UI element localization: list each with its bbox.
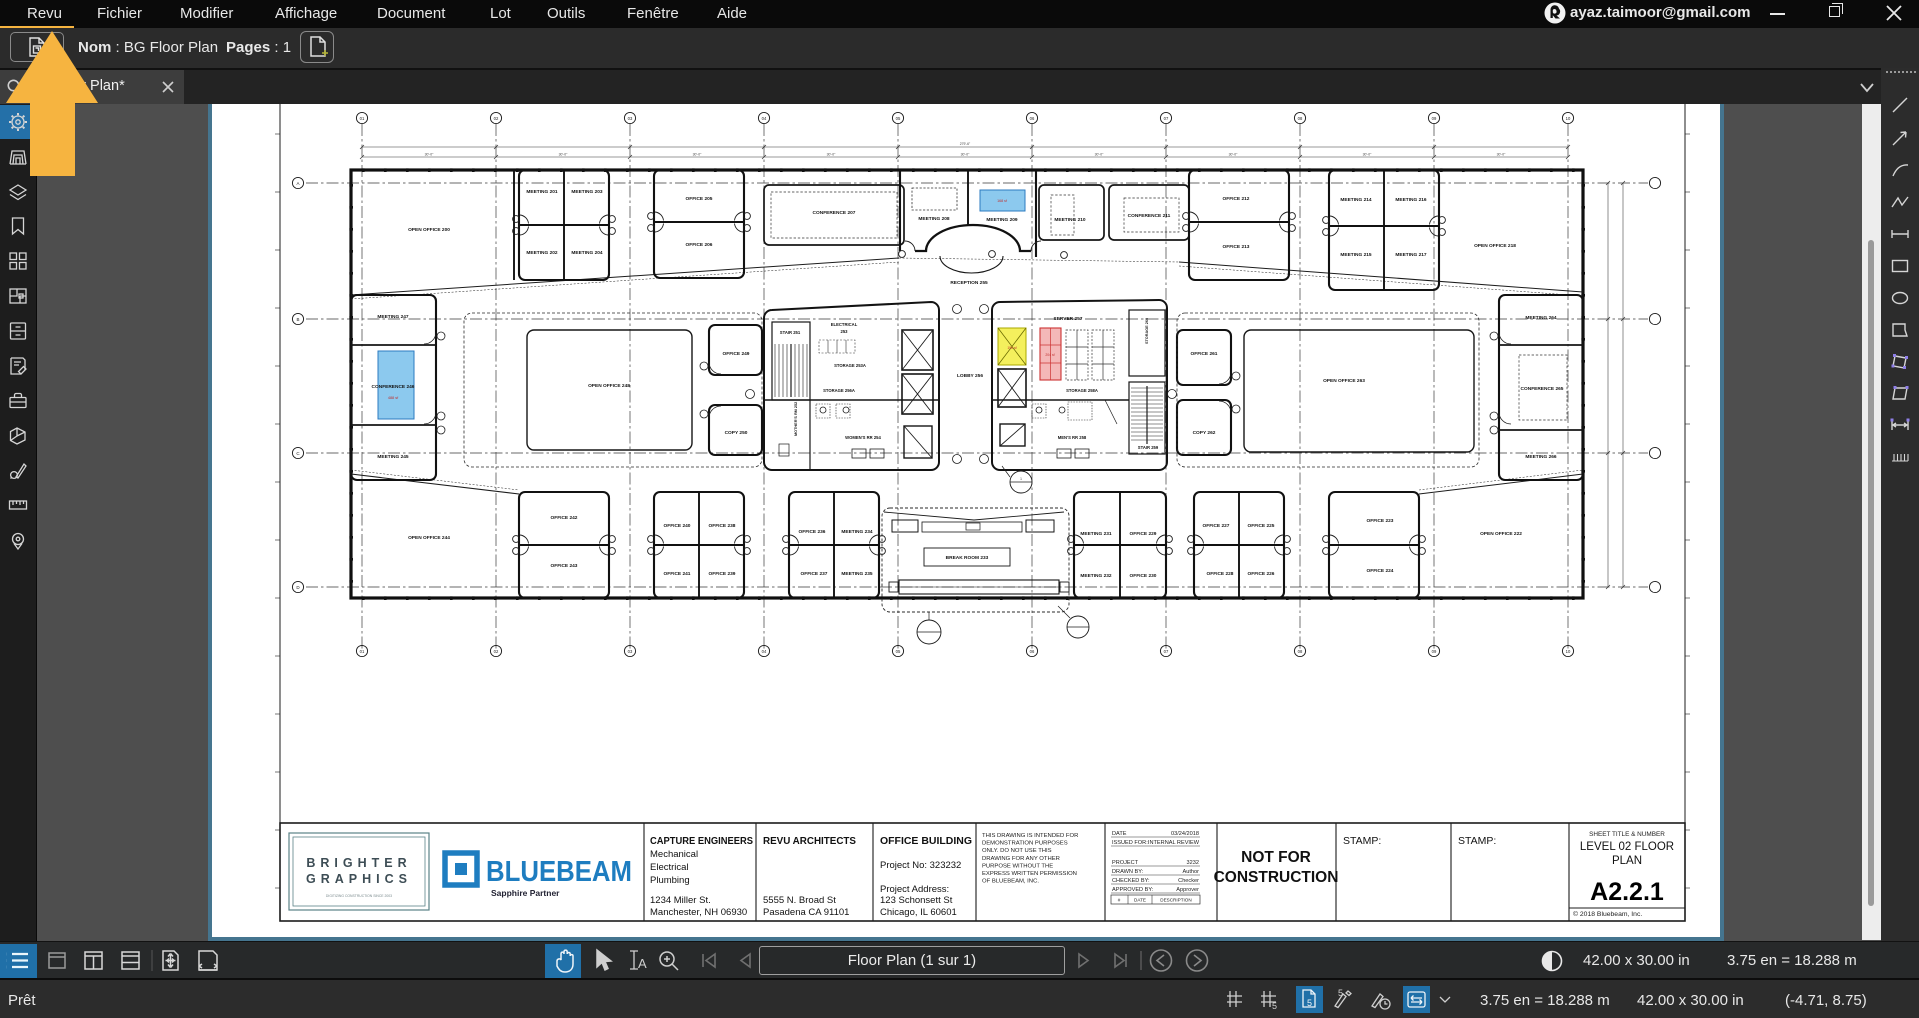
svg-text:CAPTURE ENGINEERS: CAPTURE ENGINEERS	[650, 835, 753, 847]
svg-text:MEETING 204: MEETING 204	[571, 250, 603, 256]
svg-text:30'-0": 30'-0"	[1229, 153, 1238, 157]
svg-text:OFFICE 239: OFFICE 239	[709, 571, 736, 577]
svg-text:OFFICE 225: OFFICE 225	[1248, 523, 1275, 529]
svg-text:CONSTRUCTION: CONSTRUCTION	[1214, 869, 1339, 886]
svg-text:Mechanical: Mechanical	[650, 849, 698, 860]
svg-text:DATE: DATE	[1112, 831, 1127, 837]
svg-text:COPY 262: COPY 262	[1193, 430, 1216, 436]
svg-text:OFFICE 213: OFFICE 213	[1223, 244, 1250, 250]
svg-text:A: A	[638, 956, 647, 971]
svg-text:MEETING 210: MEETING 210	[1054, 217, 1086, 223]
svg-text:5555 N. Broad St: 5555 N. Broad St	[763, 895, 836, 906]
svg-text:MEETING 216: MEETING 216	[1395, 197, 1427, 203]
svg-text:30'-0": 30'-0"	[693, 153, 702, 157]
svg-text:D: D	[296, 585, 300, 590]
svg-text:MEETING 234: MEETING 234	[841, 529, 873, 535]
svg-text:5: 5	[1272, 1001, 1277, 1011]
svg-text:279'-6": 279'-6"	[960, 142, 971, 146]
svg-text:OFFICE 205: OFFICE 205	[686, 196, 713, 202]
svg-text:PROJECT: PROJECT	[1112, 860, 1139, 866]
svg-text:OFFICE 242: OFFICE 242	[551, 515, 578, 521]
svg-text:03: 03	[628, 116, 633, 121]
svg-text:ONLY. DO NOT USE THIS: ONLY. DO NOT USE THIS	[982, 848, 1052, 854]
svg-text:OFFICE 249: OFFICE 249	[723, 351, 750, 357]
svg-text:STORAGE 258A: STORAGE 258A	[1066, 388, 1098, 393]
svg-text:LOBBY 256: LOBBY 256	[957, 373, 983, 379]
svg-text:30'-0": 30'-0"	[559, 153, 568, 157]
svg-text:OFFICE 230: OFFICE 230	[1130, 573, 1157, 579]
svg-text:204 sf: 204 sf	[1045, 353, 1054, 357]
svg-text:STORAGE 260: STORAGE 260	[1145, 318, 1149, 344]
svg-text:DRAWN BY:: DRAWN BY:	[1112, 869, 1144, 875]
svg-text:MEETING 245: MEETING 245	[377, 454, 409, 460]
svg-text:OFFICE 223: OFFICE 223	[1367, 518, 1394, 524]
svg-text:BLUEBEAM: BLUEBEAM	[486, 856, 632, 888]
svg-text:05: 05	[896, 649, 901, 654]
svg-text:STAMP:: STAMP:	[1343, 835, 1381, 847]
svg-text:OFFICE 236: OFFICE 236	[799, 529, 826, 535]
svg-text:OFFICE 227: OFFICE 227	[1203, 523, 1230, 529]
svg-text:ISSUED FOR:: ISSUED FOR:	[1112, 840, 1148, 846]
svg-text:MEETING 266: MEETING 266	[1525, 454, 1557, 460]
svg-text:WOMEN'S RR 254: WOMEN'S RR 254	[845, 435, 881, 440]
svg-text:STAMP:: STAMP:	[1458, 835, 1496, 847]
svg-text:1: 1	[1020, 477, 1022, 481]
svg-text:01: 01	[360, 116, 365, 121]
svg-text:DRAWING FOR ANY OTHER: DRAWING FOR ANY OTHER	[982, 856, 1060, 862]
svg-text:30'-0": 30'-0"	[425, 153, 434, 157]
svg-text:253: 253	[841, 329, 849, 334]
svg-text:STAIR 251: STAIR 251	[780, 330, 801, 335]
svg-text:OFFICE 243: OFFICE 243	[551, 563, 578, 569]
svg-text:OPEN OFFICE 218: OPEN OFFICE 218	[1474, 243, 1516, 249]
svg-text:COPY 250: COPY 250	[725, 430, 748, 436]
svg-text:MEETING 201: MEETING 201	[526, 189, 558, 195]
svg-text:08: 08	[1298, 649, 1303, 654]
svg-text:04: 04	[762, 649, 767, 654]
svg-text:488 sf: 488 sf	[388, 396, 399, 400]
svg-text:3232: 3232	[1187, 860, 1199, 866]
svg-text:04: 04	[762, 116, 767, 121]
svg-text:Checker: Checker	[1178, 878, 1199, 884]
svg-text:DIGITIZING CONSTRUCTION SINCE: DIGITIZING CONSTRUCTION SINCE 2003	[326, 894, 392, 898]
svg-text:CONFERENCE 211: CONFERENCE 211	[1128, 213, 1171, 219]
svg-text:OF BLUEBEAM, INC.: OF BLUEBEAM, INC.	[982, 879, 1039, 885]
svg-text:OFFICE 228: OFFICE 228	[1207, 571, 1234, 577]
svg-text:OFFICE BUILDING: OFFICE BUILDING	[880, 835, 972, 847]
svg-text:DEMONSTRATION PURPOSES: DEMONSTRATION PURPOSES	[982, 841, 1068, 847]
svg-text:MEETING 202: MEETING 202	[526, 250, 558, 256]
svg-text:09: 09	[1432, 116, 1437, 121]
svg-text:BREAK ROOM 233: BREAK ROOM 233	[946, 555, 989, 561]
svg-text:03/24/2018: 03/24/2018	[1171, 831, 1199, 837]
svg-text:OFFICE 226: OFFICE 226	[1248, 571, 1275, 577]
svg-text:OFFICE 212: OFFICE 212	[1223, 196, 1250, 202]
svg-text:OFFICE 261: OFFICE 261	[1191, 351, 1218, 357]
svg-text:OFFICE 224: OFFICE 224	[1367, 568, 1394, 574]
svg-text:10: 10	[1566, 649, 1571, 654]
svg-text:OPEN OFFICE 248: OPEN OFFICE 248	[588, 383, 630, 389]
svg-text:OPEN OFFICE 222: OPEN OFFICE 222	[1480, 531, 1522, 537]
svg-text:PURPOSE WITHOUT THE: PURPOSE WITHOUT THE	[982, 863, 1053, 869]
svg-text:LEVEL 02 FLOOR: LEVEL 02 FLOOR	[1580, 841, 1674, 853]
svg-text:CONFERENCE 265: CONFERENCE 265	[1521, 386, 1564, 392]
svg-text:Plumbing: Plumbing	[650, 875, 690, 886]
svg-text:OFFICE 237: OFFICE 237	[801, 571, 828, 577]
svg-text:OPEN OFFICE 244: OPEN OFFICE 244	[408, 535, 450, 541]
svg-text:Chicago, IL 60601: Chicago, IL 60601	[880, 907, 957, 918]
svg-text:PLAN: PLAN	[1612, 855, 1642, 867]
svg-text:THIS DRAWING IS INTENDED FOR: THIS DRAWING IS INTENDED FOR	[982, 833, 1078, 839]
svg-text:08: 08	[1298, 116, 1303, 121]
svg-text:03: 03	[628, 649, 633, 654]
svg-text:STAIR 259: STAIR 259	[1138, 445, 1159, 450]
svg-text:RECEPTION 255: RECEPTION 255	[950, 280, 988, 286]
svg-text:MEETING 231: MEETING 231	[1080, 531, 1112, 537]
svg-text:STORAGE 253A: STORAGE 253A	[834, 363, 866, 368]
svg-text:07: 07	[1164, 116, 1169, 121]
svg-text:OPEN OFFICE 200: OPEN OFFICE 200	[408, 227, 450, 233]
svg-text:MEETING 209: MEETING 209	[986, 217, 1018, 223]
svg-text:NOT FOR: NOT FOR	[1241, 849, 1311, 866]
svg-text:GRAPHICS: GRAPHICS	[306, 872, 412, 886]
svg-text:Project No: 323232: Project No: 323232	[880, 860, 961, 871]
svg-text:MEETING 208: MEETING 208	[918, 216, 950, 222]
svg-text:10: 10	[1566, 116, 1571, 121]
svg-text:02: 02	[494, 116, 499, 121]
svg-text:© 2018 Bluebeam, Inc.: © 2018 Bluebeam, Inc.	[1573, 910, 1642, 918]
svg-text:5: 5	[1307, 998, 1312, 1008]
svg-text:OFFICE 238: OFFICE 238	[709, 523, 736, 529]
svg-text:05: 05	[896, 116, 901, 121]
svg-text:CONFERENCE 207: CONFERENCE 207	[813, 210, 856, 216]
svg-text:Pasadena CA 91101: Pasadena CA 91101	[763, 907, 849, 918]
svg-text:01: 01	[360, 649, 365, 654]
svg-text:09: 09	[1432, 649, 1437, 654]
svg-text:OFFICE 240: OFFICE 240	[664, 523, 691, 529]
svg-text:REVU ARCHITECTS: REVU ARCHITECTS	[763, 835, 856, 847]
svg-text:OFFICE 206: OFFICE 206	[686, 242, 713, 248]
svg-text:MOTHER'S RM 252: MOTHER'S RM 252	[794, 402, 798, 436]
svg-text:1234 Miller St.: 1234 Miller St.	[650, 895, 711, 906]
svg-text:OFFICE 229: OFFICE 229	[1130, 531, 1157, 537]
svg-text:Sapphire Partner: Sapphire Partner	[491, 888, 560, 898]
svg-text:Approver: Approver	[1176, 887, 1199, 893]
svg-text:DESCRIPTION: DESCRIPTION	[1160, 898, 1191, 903]
svg-text:MEETING 232: MEETING 232	[1080, 573, 1112, 579]
svg-text:BRIGHTER: BRIGHTER	[306, 856, 411, 870]
svg-text:07: 07	[1164, 649, 1169, 654]
svg-text:30'-0": 30'-0"	[1497, 153, 1506, 157]
svg-text:MEETING 215: MEETING 215	[1340, 252, 1372, 258]
svg-text:30'-0": 30'-0"	[1363, 153, 1372, 157]
svg-text:OPEN OFFICE 263: OPEN OFFICE 263	[1323, 378, 1365, 384]
svg-text:MEETING 235: MEETING 235	[841, 571, 873, 577]
svg-text:C: C	[296, 451, 300, 456]
svg-text:MEETING 247: MEETING 247	[377, 314, 409, 320]
svg-text:EXPRESS WRITTEN PERMISSION: EXPRESS WRITTEN PERMISSION	[982, 871, 1077, 877]
svg-text:30'-0": 30'-0"	[827, 153, 836, 157]
svg-text:30'-0": 30'-0"	[961, 153, 970, 157]
svg-text:Manchester, NH 06930: Manchester, NH 06930	[650, 907, 747, 918]
svg-text:OFFICE 241: OFFICE 241	[664, 571, 691, 577]
svg-text:#: #	[1118, 898, 1121, 903]
svg-text:Electrical: Electrical	[650, 862, 689, 873]
svg-text:SHEET TITLE & NUMBER: SHEET TITLE & NUMBER	[1589, 831, 1665, 838]
svg-text:APPROVED BY:: APPROVED BY:	[1112, 887, 1154, 893]
svg-text:MEETING 214: MEETING 214	[1340, 197, 1372, 203]
svg-text:06: 06	[1030, 649, 1035, 654]
svg-text:CHECKED BY:: CHECKED BY:	[1112, 878, 1150, 884]
svg-text:168 sf: 168 sf	[997, 199, 1007, 203]
svg-text:INTERNAL REVIEW: INTERNAL REVIEW	[1148, 840, 1200, 846]
svg-text:MEN'S RR 258: MEN'S RR 258	[1058, 435, 1087, 440]
svg-text:30'-0": 30'-0"	[1095, 153, 1104, 157]
svg-text:B: B	[296, 317, 299, 322]
svg-text:STORAGE 256A: STORAGE 256A	[823, 388, 855, 393]
svg-text:5: 5	[1338, 988, 1343, 998]
svg-text:06: 06	[1030, 116, 1035, 121]
svg-text:MEETING 217: MEETING 217	[1395, 252, 1427, 258]
svg-text:MEETING 203: MEETING 203	[571, 189, 603, 195]
svg-text:SERVER 257: SERVER 257	[1054, 316, 1083, 322]
svg-text:02: 02	[494, 649, 499, 654]
svg-text:A2.2.1: A2.2.1	[1590, 878, 1664, 906]
svg-text:ELECTRICAL: ELECTRICAL	[831, 322, 858, 327]
svg-text:DATE: DATE	[1134, 898, 1146, 903]
svg-text:Project Address:: Project Address:	[880, 884, 949, 895]
svg-text:A: A	[296, 181, 299, 186]
svg-text:196 sf: 196 sf	[1007, 346, 1016, 350]
svg-text:CONFERENCE 246: CONFERENCE 246	[372, 384, 415, 390]
svg-text:Author: Author	[1183, 869, 1200, 875]
svg-text:123 Schonsett St: 123 Schonsett St	[880, 895, 953, 906]
svg-text:MEETING 264: MEETING 264	[1525, 315, 1557, 321]
